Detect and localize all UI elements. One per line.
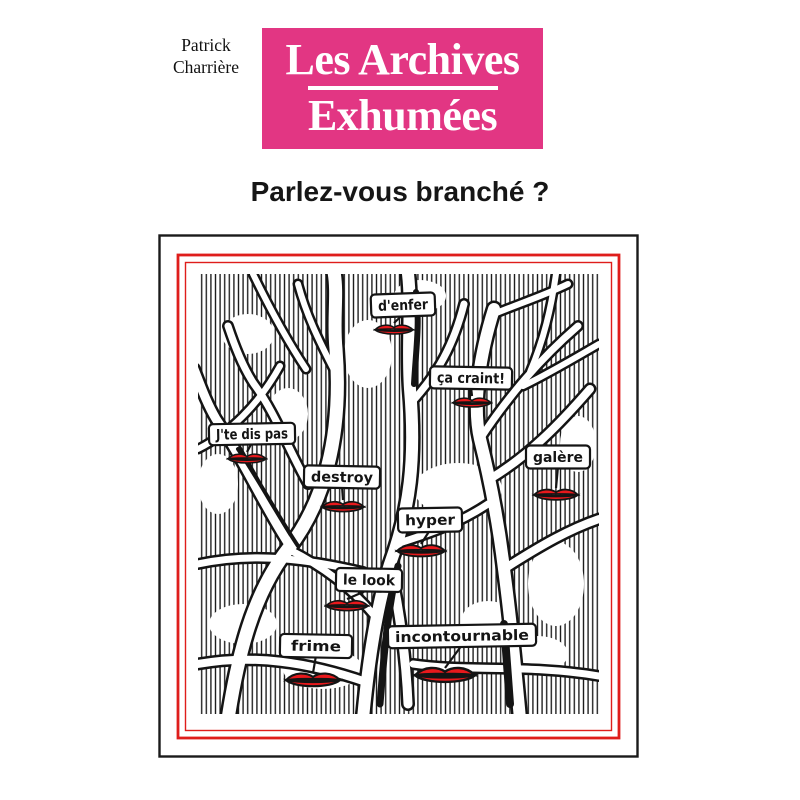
label-text: le look xyxy=(343,573,396,590)
author-name: Patrick Charrière xyxy=(156,34,256,79)
illustration-frame: d'enferça craint!J'te dis pasdestroygalè… xyxy=(158,234,639,758)
label-text: incontournable xyxy=(395,628,529,646)
label-text: destroy xyxy=(311,469,374,486)
author-first-name: Patrick xyxy=(156,34,256,56)
author-last-name: Charrière xyxy=(156,56,256,78)
series-title-line-1: Les Archives xyxy=(286,38,520,83)
label-text: J'te dis pas xyxy=(215,426,288,443)
label-text: frime xyxy=(291,639,341,656)
book-cover: Patrick Charrière Les Archives Exhumées … xyxy=(0,0,800,800)
series-title-line-2: Exhumées xyxy=(308,94,497,139)
tree-lips-illustration: d'enferça craint!J'te dis pasdestroygalè… xyxy=(158,234,639,758)
title-divider-rule xyxy=(308,86,498,90)
label-text: hyper xyxy=(405,513,456,530)
label-text: d'enfer xyxy=(378,297,429,315)
label-text: ça craint! xyxy=(437,370,505,387)
label-text: galère xyxy=(533,450,583,466)
series-title-block: Les Archives Exhumées xyxy=(262,28,543,149)
book-title: Parlez-vous branché ? xyxy=(0,176,800,208)
